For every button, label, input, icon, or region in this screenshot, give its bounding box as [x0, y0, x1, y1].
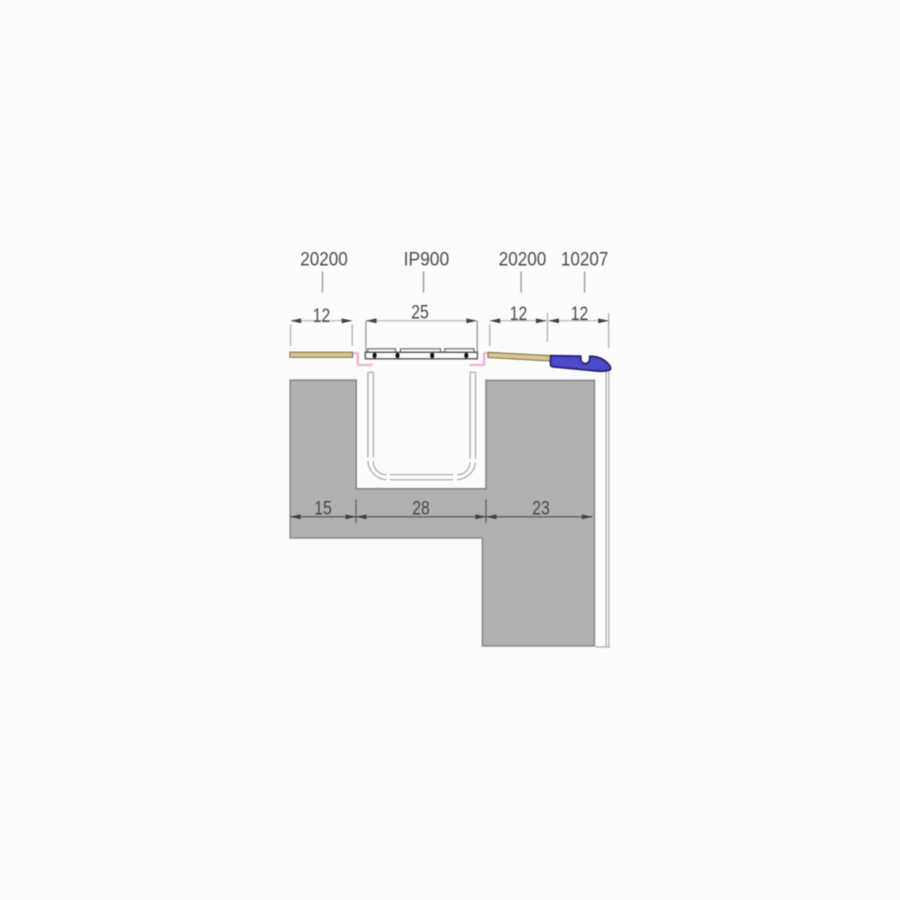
svg-text:28: 28 — [412, 498, 430, 520]
svg-text:20200: 20200 — [300, 249, 348, 271]
svg-text:12: 12 — [313, 305, 331, 327]
svg-text:12: 12 — [571, 303, 589, 325]
svg-text:25: 25 — [411, 302, 429, 324]
svg-text:20200: 20200 — [499, 249, 547, 271]
svg-text:12: 12 — [510, 303, 528, 325]
svg-text:15: 15 — [314, 498, 332, 520]
svg-text:23: 23 — [532, 498, 550, 520]
svg-text:10207: 10207 — [561, 249, 609, 271]
svg-text:IP900: IP900 — [404, 249, 450, 271]
